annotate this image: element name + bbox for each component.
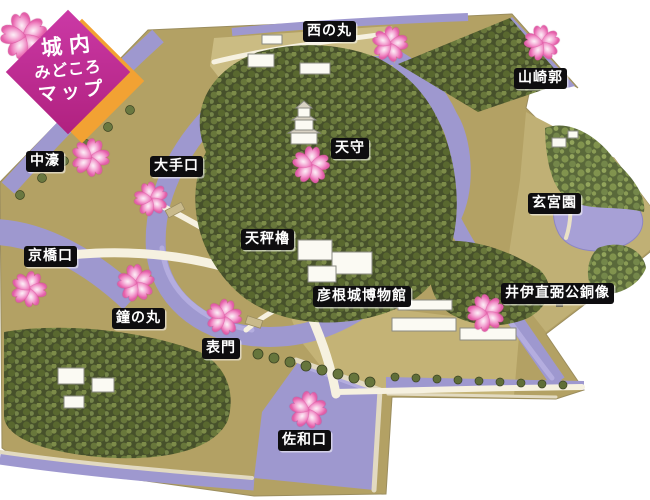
label-nishinomaru: 西の丸 <box>303 21 356 42</box>
castle-map-page: 城内 みどころ マップ 西の丸山崎郭中濠大手口天守玄宮園京橋口天秤櫓彦根城博物館… <box>0 0 650 500</box>
sakura-marker-kanenomaru <box>110 257 162 309</box>
label-hikone-castle-museum: 彦根城博物館 <box>313 286 411 307</box>
label-omotemon: 表門 <box>202 338 240 359</box>
sakura-marker-yamazaki-kuruwa <box>518 19 566 67</box>
page-title: 城内 みどころ マップ <box>9 30 127 107</box>
label-tenshu: 天守 <box>331 138 369 159</box>
town-house <box>58 368 84 384</box>
town-house <box>92 378 114 392</box>
nishinomaru-building <box>248 54 274 67</box>
label-nakabori: 中濠 <box>26 151 64 172</box>
label-oteguchi: 大手口 <box>150 156 203 177</box>
label-kyobashiguchi: 京橋口 <box>24 246 77 267</box>
label-sawaguchi: 佐和口 <box>278 430 331 451</box>
sakura-marker-nishinomaru <box>365 19 416 70</box>
label-kanenomaru: 鐘の丸 <box>112 308 165 329</box>
town-house <box>64 396 84 408</box>
museum-building <box>298 240 332 260</box>
museum-building <box>332 252 372 274</box>
museum-building <box>308 266 336 282</box>
label-tenbin-yagura: 天秤櫓 <box>241 229 294 250</box>
nishinomaru-building <box>262 35 282 44</box>
genkyuen-pavilion <box>568 131 578 138</box>
label-genkyuen: 玄宮園 <box>528 193 581 214</box>
sakura-marker-sawaguchi <box>282 384 334 436</box>
label-ii-naosuke-statue: 井伊直弼公銅像 <box>501 283 614 304</box>
nishinomaru-building <box>300 63 330 74</box>
sakura-marker-tenshu <box>286 140 337 191</box>
title-badge: 城内 みどころ マップ <box>0 0 175 175</box>
genkyuen-pavilion <box>552 138 566 147</box>
long-building <box>392 318 456 331</box>
label-yamazaki-kuruwa: 山崎郭 <box>514 68 567 89</box>
